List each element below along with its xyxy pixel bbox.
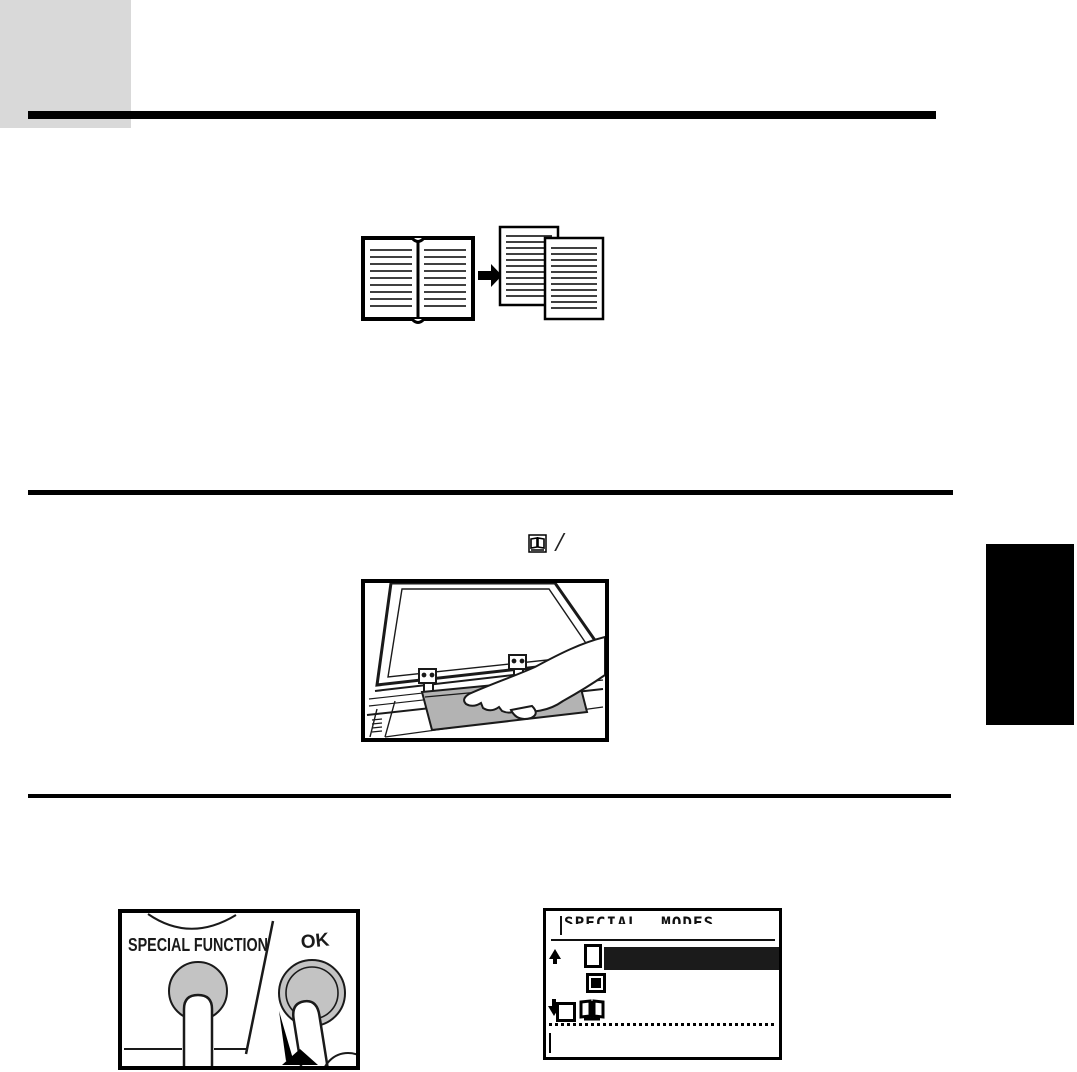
finger-left xyxy=(184,995,212,1066)
chapter-tab xyxy=(0,0,131,128)
chapter-edge-tab xyxy=(986,544,1074,725)
copier-art xyxy=(365,583,605,738)
lcd-separator xyxy=(551,939,775,941)
empty-square-icon xyxy=(556,1002,576,1022)
single-page-icon xyxy=(584,944,602,968)
lcd-dotted-line xyxy=(549,1023,776,1026)
erase-icon xyxy=(586,973,606,993)
copier-placement-illustration xyxy=(361,579,609,742)
lcd-title-tick xyxy=(560,916,562,935)
special-function-key-label: SPECIAL FUNCTION xyxy=(128,935,268,955)
up-marker-base xyxy=(553,958,557,964)
dual-page-book-icon xyxy=(578,999,606,1023)
slash-separator: / xyxy=(553,530,566,555)
lcd-cursor xyxy=(549,1033,551,1053)
top-rule xyxy=(28,111,936,119)
keys-art: SPECIAL FUNCTION OK xyxy=(122,913,356,1066)
selected-row-highlight xyxy=(604,947,779,970)
section-rule-3 xyxy=(28,794,951,798)
upper-key-arc xyxy=(148,914,236,929)
ok-key-label: OK xyxy=(300,930,331,954)
lcd-title-clipped: SPECIAL MODES xyxy=(564,915,744,924)
keys-illustration: SPECIAL FUNCTION OK xyxy=(118,909,360,1070)
output-pages-art xyxy=(500,227,603,319)
dual-page-key-icon xyxy=(528,534,547,554)
arrow-right-icon xyxy=(478,264,502,287)
section-rule-2 xyxy=(28,490,953,495)
dual-page-copy-diagram xyxy=(340,215,620,345)
open-book-art xyxy=(363,238,473,323)
lcd-display: SPECIAL MODES xyxy=(543,908,782,1060)
lcd-title-text: SPECIAL MODES xyxy=(564,915,744,924)
